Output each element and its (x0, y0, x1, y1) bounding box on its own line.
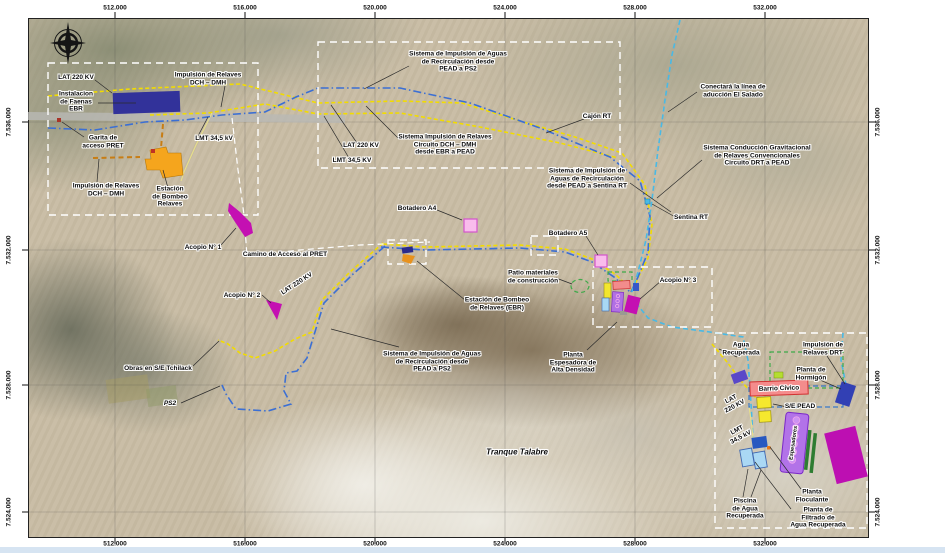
label-sentina-rt: Sentina RT (674, 214, 708, 222)
grid-label-top-2: 516.000 (233, 5, 257, 12)
label-ps2: PS2 (164, 400, 176, 408)
grid-label-right-3: 7.528.000 (875, 371, 882, 400)
label-lat220-nw: LAT 220 KV (58, 74, 94, 82)
grid-label-top-4: 524.000 (493, 5, 517, 12)
label-tranque-talabre: Tranque Talabre (486, 447, 548, 456)
label-acopio-3: Acopio N° 3 (660, 277, 697, 285)
label-planta-floculante: Planta Floculante (796, 488, 829, 503)
grid-label-left-3: 7.528.000 (6, 371, 13, 400)
grid-label-right-1: 7.536.000 (875, 108, 882, 137)
label-conduccion-gravitacional: Sistema Conducción Gravitacional de Rela… (703, 145, 810, 168)
label-botadero-a5: Botadero A5 (549, 230, 587, 238)
label-planta-filtrado: Planta de Filtrado de Agua Recuperada (790, 507, 845, 530)
grid-label-right-2: 7.532.000 (875, 236, 882, 265)
label-estacion-bombeo: Estación de Bombeo Relaves (152, 186, 187, 209)
label-planta-espesadora: Planta Espesadora de Alta Densidad (550, 352, 596, 375)
label-estacion-ebr: Estación de Bombeo de Relaves (EBR) (465, 296, 529, 311)
grid-label-top-1: 512.000 (103, 5, 127, 12)
label-lmt-inset: LMT 34,5 KV (333, 157, 372, 165)
label-sistema-aguas-sentina: Sistema de Impulsión de Aguas de Recircu… (547, 168, 627, 191)
label-conectara-salado: Conectará la línea de aducción El Salado (700, 83, 765, 98)
map-document: 512.000 516.000 520.000 524.000 528.000 … (0, 0, 945, 553)
grid-label-left-2: 7.532.000 (6, 236, 13, 265)
grid-label-left-4: 7.524.000 (6, 498, 13, 527)
label-sistema-aguas-sw: Sistema de Impulsión de Aguas de Recircu… (383, 351, 481, 374)
window-edge-strip (0, 547, 945, 553)
label-lmt-nw: LMT 34,5 kV (195, 135, 233, 143)
label-impulsion-relaves-sw: Impulsión de Relaves DCH – DMH (73, 182, 139, 197)
label-barrio-civico: Barrio Cívico (759, 384, 800, 393)
grid-label-top-6: 532.000 (753, 5, 777, 12)
label-botadero-a4: Botadero A4 (398, 205, 436, 213)
label-agua-recuperada: Agua Recuperada (722, 341, 759, 356)
grid-label-right-4: 7.524.000 (875, 498, 882, 527)
label-lat220-inset: LAT 220 KV (343, 142, 379, 150)
terrain-fields (106, 374, 151, 404)
label-cajon-rt: Cajón RT (583, 113, 612, 121)
label-camino-acceso: Camino de Acceso al PRET (243, 251, 327, 259)
label-impulsion-relaves-nw: Impulsión de Relaves DCH – DMH (175, 71, 241, 86)
label-acopio-1: Acopio N° 1 (185, 244, 222, 252)
label-se-pead: S/E PEAD (785, 403, 815, 411)
label-piscina-agua: Piscina de Agua Recuperada (726, 498, 763, 521)
label-obras-tchilack: Obras en S/E Tchilack (124, 365, 192, 373)
grid-label-top-3: 520.000 (363, 5, 387, 12)
label-sistema-aguas-nc: Sistema de Impulsión de Aguas de Recircu… (409, 51, 507, 74)
label-impulsion-drt: Impulsión de Relaves DRT (803, 341, 843, 356)
grid-label-left-1: 7.536.000 (6, 108, 13, 137)
label-patio-materiales: Patio materiales de construcción (508, 269, 558, 284)
label-instalacion-faenas: Instalacion de Faenas EBR (59, 91, 93, 114)
grid-label-top-5: 528.000 (623, 5, 647, 12)
label-planta-hormigon: Planta de Hormigón (796, 366, 827, 381)
label-garita-acceso: Garita de acceso PRET (82, 134, 123, 149)
label-acopio-2: Acopio N° 2 (224, 292, 261, 300)
label-sistema-relaves-nc: Sistema Impulsión de Relaves Circuito DC… (398, 134, 491, 157)
